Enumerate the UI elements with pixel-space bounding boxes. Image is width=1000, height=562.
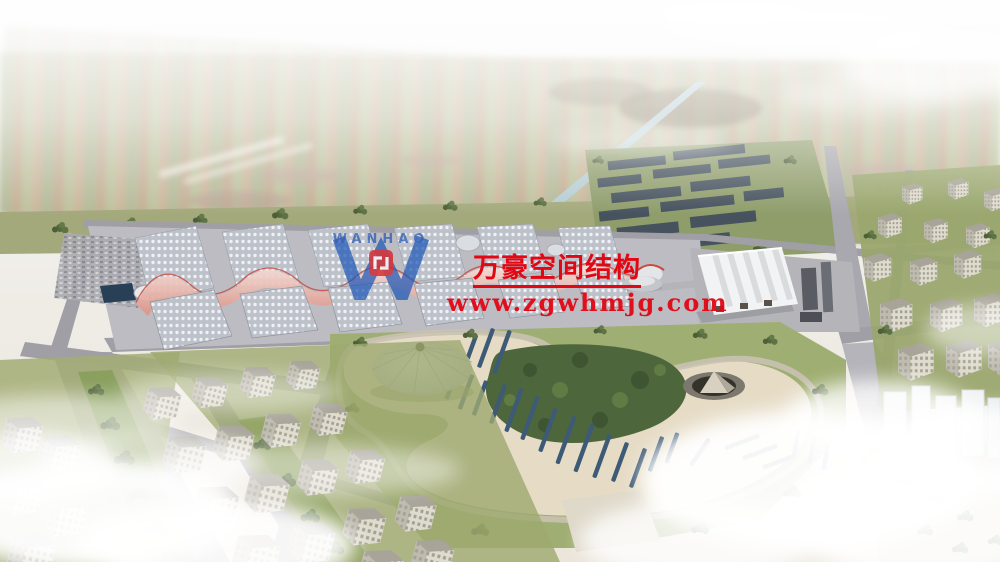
company-logo: WANHAO <box>333 236 429 320</box>
pond <box>100 283 136 303</box>
watermark-company-name: 万豪空间结构 <box>473 254 641 288</box>
logo-red-emblem <box>369 250 393 276</box>
watermark-website: www.zgwhmjg.com <box>447 288 729 317</box>
logo-wordmark: WANHAO <box>333 232 430 247</box>
aerial-rendering: WANHAO 万豪空间结构 www.zgwhmjg.com <box>0 0 1000 562</box>
round-pavilion <box>456 235 480 251</box>
